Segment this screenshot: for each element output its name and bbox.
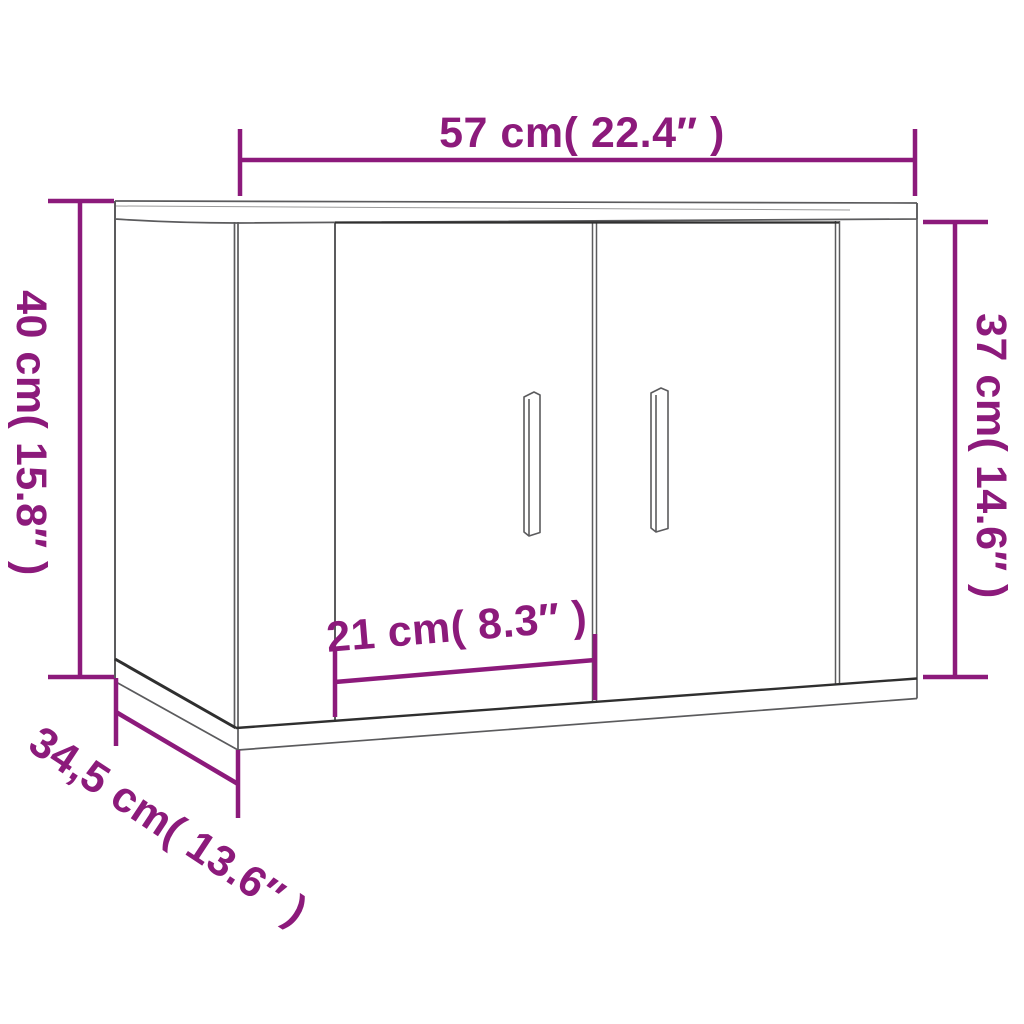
door-width-dim-line bbox=[335, 660, 595, 682]
diagram-canvas: 57 cm( 22.4″ ) 40 cm( 15.8″ ) 37 cm( 14.… bbox=[0, 0, 1024, 1024]
top-panel-detail bbox=[116, 206, 850, 210]
depth-dim-line bbox=[116, 712, 238, 784]
dimension-label-height-right: 37 cm( 14.6″ ) bbox=[967, 313, 1015, 599]
dimension-labels: 57 cm( 22.4″ ) 40 cm( 15.8″ ) 37 cm( 14.… bbox=[7, 109, 1015, 935]
front-bottom-edge bbox=[236, 679, 917, 729]
bottom-outer-edge bbox=[116, 682, 917, 750]
left-front-edge bbox=[235, 222, 239, 750]
left-door-handle bbox=[524, 392, 540, 536]
cabinet-dimension-diagram: 57 cm( 22.4″ ) 40 cm( 15.8″ ) 37 cm( 14.… bbox=[0, 0, 1024, 1024]
right-door-handle bbox=[651, 388, 668, 532]
dimension-label-width: 57 cm( 22.4″ ) bbox=[439, 109, 725, 157]
dimension-lines bbox=[48, 129, 988, 818]
side-bottom-edge bbox=[115, 659, 236, 728]
dimension-height-left-line bbox=[48, 201, 114, 677]
dimension-label-door-width: 21 cm( 8.3″ ) bbox=[325, 592, 589, 662]
right-door-edge bbox=[836, 221, 840, 684]
door-divider bbox=[593, 222, 597, 702]
dimension-label-depth: 34,5 cm( 13.6″ ) bbox=[20, 717, 316, 935]
dimension-label-height-left: 40 cm( 15.8″ ) bbox=[7, 290, 55, 576]
top-panel-edge-line bbox=[116, 206, 850, 210]
top-panel bbox=[115, 201, 917, 223]
